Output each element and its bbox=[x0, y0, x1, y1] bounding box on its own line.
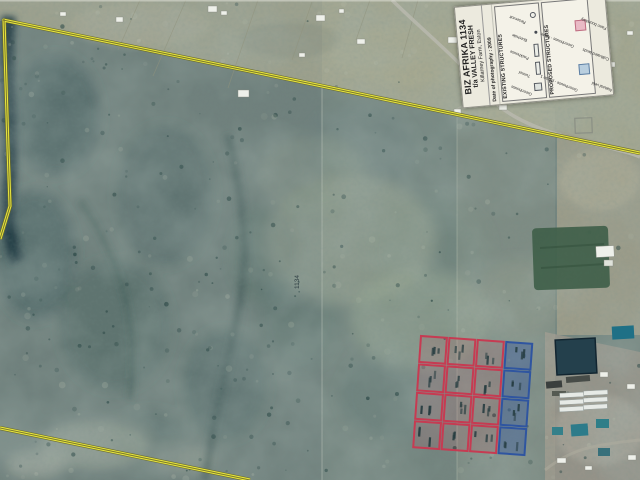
legend-item: Tunnel bbox=[507, 59, 542, 80]
legend-item-label: Packhouse bbox=[509, 49, 529, 61]
legend-item-label: Borehole bbox=[511, 33, 528, 43]
square-symbol-icon bbox=[578, 64, 590, 76]
legend-item-label: Tunnel bbox=[518, 70, 531, 79]
tunnel-roofs bbox=[559, 390, 609, 412]
proposed-greenhouse-future-cell bbox=[444, 395, 472, 423]
proposed-greenhouse-phase1-cell bbox=[499, 427, 527, 455]
map-legend: BIZ AFRIKA 1134 t/a VALLEY FRESH Killarn… bbox=[454, 0, 614, 108]
proposed-greenhouse-future-cell bbox=[476, 340, 504, 368]
green-field bbox=[532, 226, 614, 291]
proposed-greenhouse-future-cell bbox=[472, 397, 500, 425]
legend-item: Reservoir bbox=[502, 6, 537, 27]
parcel-number-label: 1134 bbox=[294, 275, 301, 289]
legend-item-label: Greenhouse bbox=[510, 84, 532, 97]
wide-rect-symbol-icon bbox=[534, 44, 540, 57]
proposed-greenhouse-future-cell bbox=[470, 425, 498, 453]
legend-item: Natural veld bbox=[595, 61, 614, 94]
proposed-greenhouse-phase1-cell bbox=[502, 370, 530, 398]
aerial-map-view: 1134 BIZ AFRIKA 1134 t/a VALLEY FRESH Ki… bbox=[0, 0, 640, 480]
circle-symbol-icon bbox=[530, 12, 537, 19]
square-symbol-icon bbox=[534, 82, 543, 91]
legend-item-label: Reservoir bbox=[509, 14, 527, 25]
existing-structures-items: GreenhouseTunnelPackhouseBoreholeReservo… bbox=[502, 6, 544, 99]
proposed-greenhouse-future-cell bbox=[474, 368, 502, 396]
legend-item: Borehole bbox=[504, 24, 539, 45]
proposed-greenhouse-future-cell bbox=[413, 421, 441, 449]
proposed-greenhouse-phase1-cell bbox=[504, 342, 532, 370]
legend-item: Packhouse bbox=[505, 42, 540, 63]
legend-item: Greenhouse bbox=[509, 77, 544, 98]
legend-item: Greenhouse - phase 1 bbox=[553, 47, 593, 94]
farm-dam bbox=[555, 338, 597, 375]
legend-item: Greenhouse - future bbox=[549, 3, 589, 50]
legend-existing-box: EXISTING STRUCTURES GreenhouseTunnelPack… bbox=[494, 2, 547, 102]
dot-symbol-icon bbox=[534, 31, 537, 34]
